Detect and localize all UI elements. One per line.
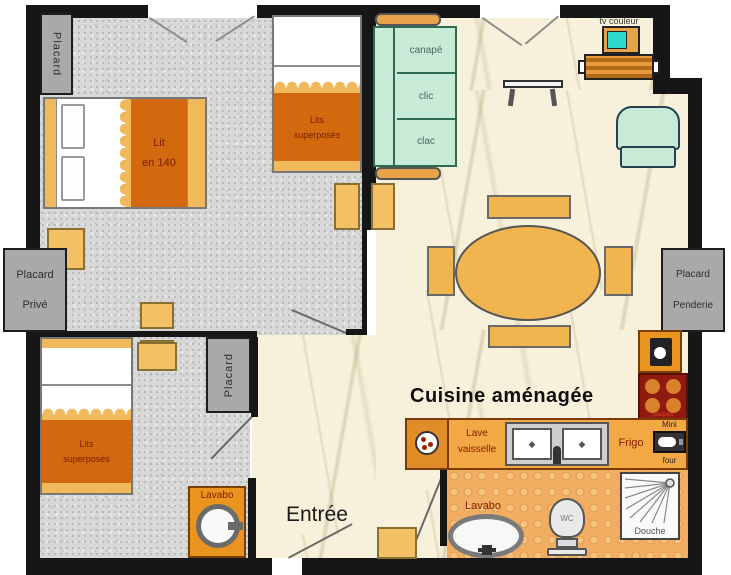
dishwasher-plate-icon	[415, 431, 439, 455]
radiator	[334, 183, 360, 230]
armchair	[616, 106, 680, 170]
blanket-wavy-edge	[119, 99, 131, 207]
toilet-pedestal	[547, 548, 587, 556]
bunk-footboard	[42, 483, 131, 493]
dishwasher-label-line2: vaisselle	[449, 442, 505, 458]
sofa-cushion: clac	[397, 120, 455, 163]
bathroom-sink-label: Lavabo	[452, 500, 514, 512]
nightstand	[137, 342, 177, 371]
stove: plaques	[638, 373, 688, 420]
washbasin-bedroom2: Lavabo	[188, 486, 246, 558]
table-leg	[550, 89, 557, 107]
tv-screen	[607, 31, 627, 49]
sofa-cushion: clic	[397, 74, 455, 120]
dishwasher-label-line1: Lave	[449, 426, 505, 442]
closet-label-line1: Placard	[676, 269, 710, 280]
mini-oven-label-line2: four	[653, 456, 686, 465]
mini-oven: Mini four	[653, 420, 686, 468]
bed-footboard	[187, 99, 205, 207]
bed-label-line1: Lit	[153, 137, 165, 149]
sofa-label-line3: clac	[417, 136, 435, 147]
bunk-bed-bottom: Lits superposés	[40, 337, 133, 495]
sofa-armrest	[375, 167, 441, 180]
closet-wardrobe: Placard Penderie	[661, 248, 725, 332]
burner-icon	[645, 398, 660, 413]
bunk-label-line1: Lits	[310, 115, 324, 125]
sofa-label-line2: clic	[419, 91, 433, 102]
tv-label: tv couleur	[588, 16, 650, 26]
bunk-label-line2: superposés	[294, 130, 341, 140]
closet-private: Placard Privé	[3, 248, 67, 332]
wc-label: WC	[560, 514, 573, 523]
washbasin-label: Lavabo	[190, 490, 244, 501]
sofa-cushions: canapé clic clac	[397, 28, 455, 165]
faucet-icon	[478, 548, 496, 552]
coffee-maker	[638, 330, 682, 373]
dining-chair	[604, 246, 633, 296]
shower: Douche	[620, 472, 680, 540]
dining-chair	[427, 246, 455, 296]
dishwasher-label: Lave vaisselle	[449, 426, 505, 458]
bathroom-sink-icon	[448, 514, 524, 558]
sofa-label-line1: canapé	[410, 45, 443, 56]
sofa-clic-clac: canapé clic clac	[373, 13, 457, 180]
bunk-bed-top: Lits superposés	[272, 15, 362, 173]
bunk-label-line1: Lits	[79, 439, 93, 449]
microwave-icon	[653, 431, 686, 453]
microwave-knob	[679, 439, 683, 445]
dining-chair	[487, 195, 571, 219]
bunk-headboard	[42, 339, 131, 348]
bunk-blanket: Lits superposés	[42, 420, 131, 483]
blanket-wavy-edge	[42, 408, 131, 420]
pillow	[61, 156, 85, 201]
plate-dot	[421, 437, 426, 442]
armchair-seat	[620, 146, 676, 168]
bunk-label-line2: superposés	[63, 454, 110, 464]
floor-plan: Placard Lit en 140 Lits superposés Lits …	[0, 0, 731, 575]
bunk-footboard	[274, 161, 360, 171]
closet-top-left: Placard	[40, 13, 73, 95]
bed-label-line2: en 140	[142, 157, 176, 169]
sofa-cushion: canapé	[397, 28, 455, 74]
sofa-back	[375, 28, 395, 165]
double-bed: Lit en 140	[43, 97, 207, 209]
kitchen-counter: Lave vaisselle ◆ ◆ Frigo Mini four	[405, 418, 688, 470]
table-leg	[508, 89, 515, 107]
tv-stand-icon	[584, 54, 654, 80]
bed-blanket: Lit en 140	[131, 99, 187, 207]
dining-chair	[488, 325, 571, 348]
plate-dot	[422, 445, 427, 450]
coffee-maker-icon	[650, 338, 672, 366]
sofa-armrest	[375, 13, 441, 26]
burner-icon	[666, 379, 681, 394]
nightstand	[140, 302, 174, 329]
plate-dot	[428, 442, 433, 447]
wall-bottom	[302, 558, 702, 575]
burner-icon	[666, 398, 681, 413]
wall-divider-living-thin	[362, 230, 367, 335]
armchair-back	[616, 106, 680, 150]
toilet-base	[556, 538, 578, 548]
entrance-label: Entrée	[286, 503, 376, 527]
dining-table	[455, 225, 601, 321]
tv-set-icon	[602, 26, 640, 54]
double-sink: ◆ ◆	[505, 422, 609, 466]
closet-label-line2: Penderie	[673, 300, 713, 311]
closet-label-line1: Placard	[16, 269, 53, 281]
bed-headboard	[45, 99, 57, 207]
bunk-mattress	[42, 348, 131, 386]
pillow	[61, 104, 85, 149]
wall-divider-foot	[346, 329, 367, 335]
wall-bathroom	[440, 470, 447, 546]
mini-oven-label-line1: Mini	[653, 420, 686, 429]
wall-bedroom2-right	[248, 478, 256, 558]
microwave-door	[658, 437, 676, 447]
sink-handle-icon	[228, 522, 243, 530]
burner-icon	[645, 379, 660, 394]
side-table-icon	[503, 78, 563, 108]
closet-label-line2: Privé	[22, 299, 47, 311]
tv-stand-leg	[578, 60, 586, 74]
blanket-wavy-edge	[274, 81, 360, 93]
faucet-icon	[553, 446, 561, 464]
bunk-blanket: Lits superposés	[274, 93, 360, 161]
table-top	[503, 80, 563, 88]
coffee-cup-icon	[654, 347, 666, 359]
kitchen-title: Cuisine aménagée	[410, 385, 640, 408]
toilet-icon: WC	[543, 498, 591, 558]
dishwasher	[407, 420, 449, 468]
toilet-bowl: WC	[549, 498, 585, 538]
closet-middle: Placard	[206, 337, 251, 413]
sink-basin: ◆	[512, 428, 552, 460]
closet-label: Placard	[223, 353, 235, 397]
doormat	[377, 527, 417, 559]
closet-label: Placard	[51, 32, 63, 76]
tv-stand-leg	[652, 60, 660, 74]
radiator	[371, 183, 395, 230]
bunk-mattress	[274, 17, 360, 67]
fridge-label: Frigo	[609, 437, 653, 449]
sink-basin: ◆	[562, 428, 602, 460]
sofa-body: canapé clic clac	[373, 26, 457, 167]
wall-closet-stub	[251, 337, 258, 417]
wall-bottom	[26, 558, 272, 575]
shower-label: Douche	[622, 526, 678, 536]
shower-spray-icon	[622, 474, 678, 524]
